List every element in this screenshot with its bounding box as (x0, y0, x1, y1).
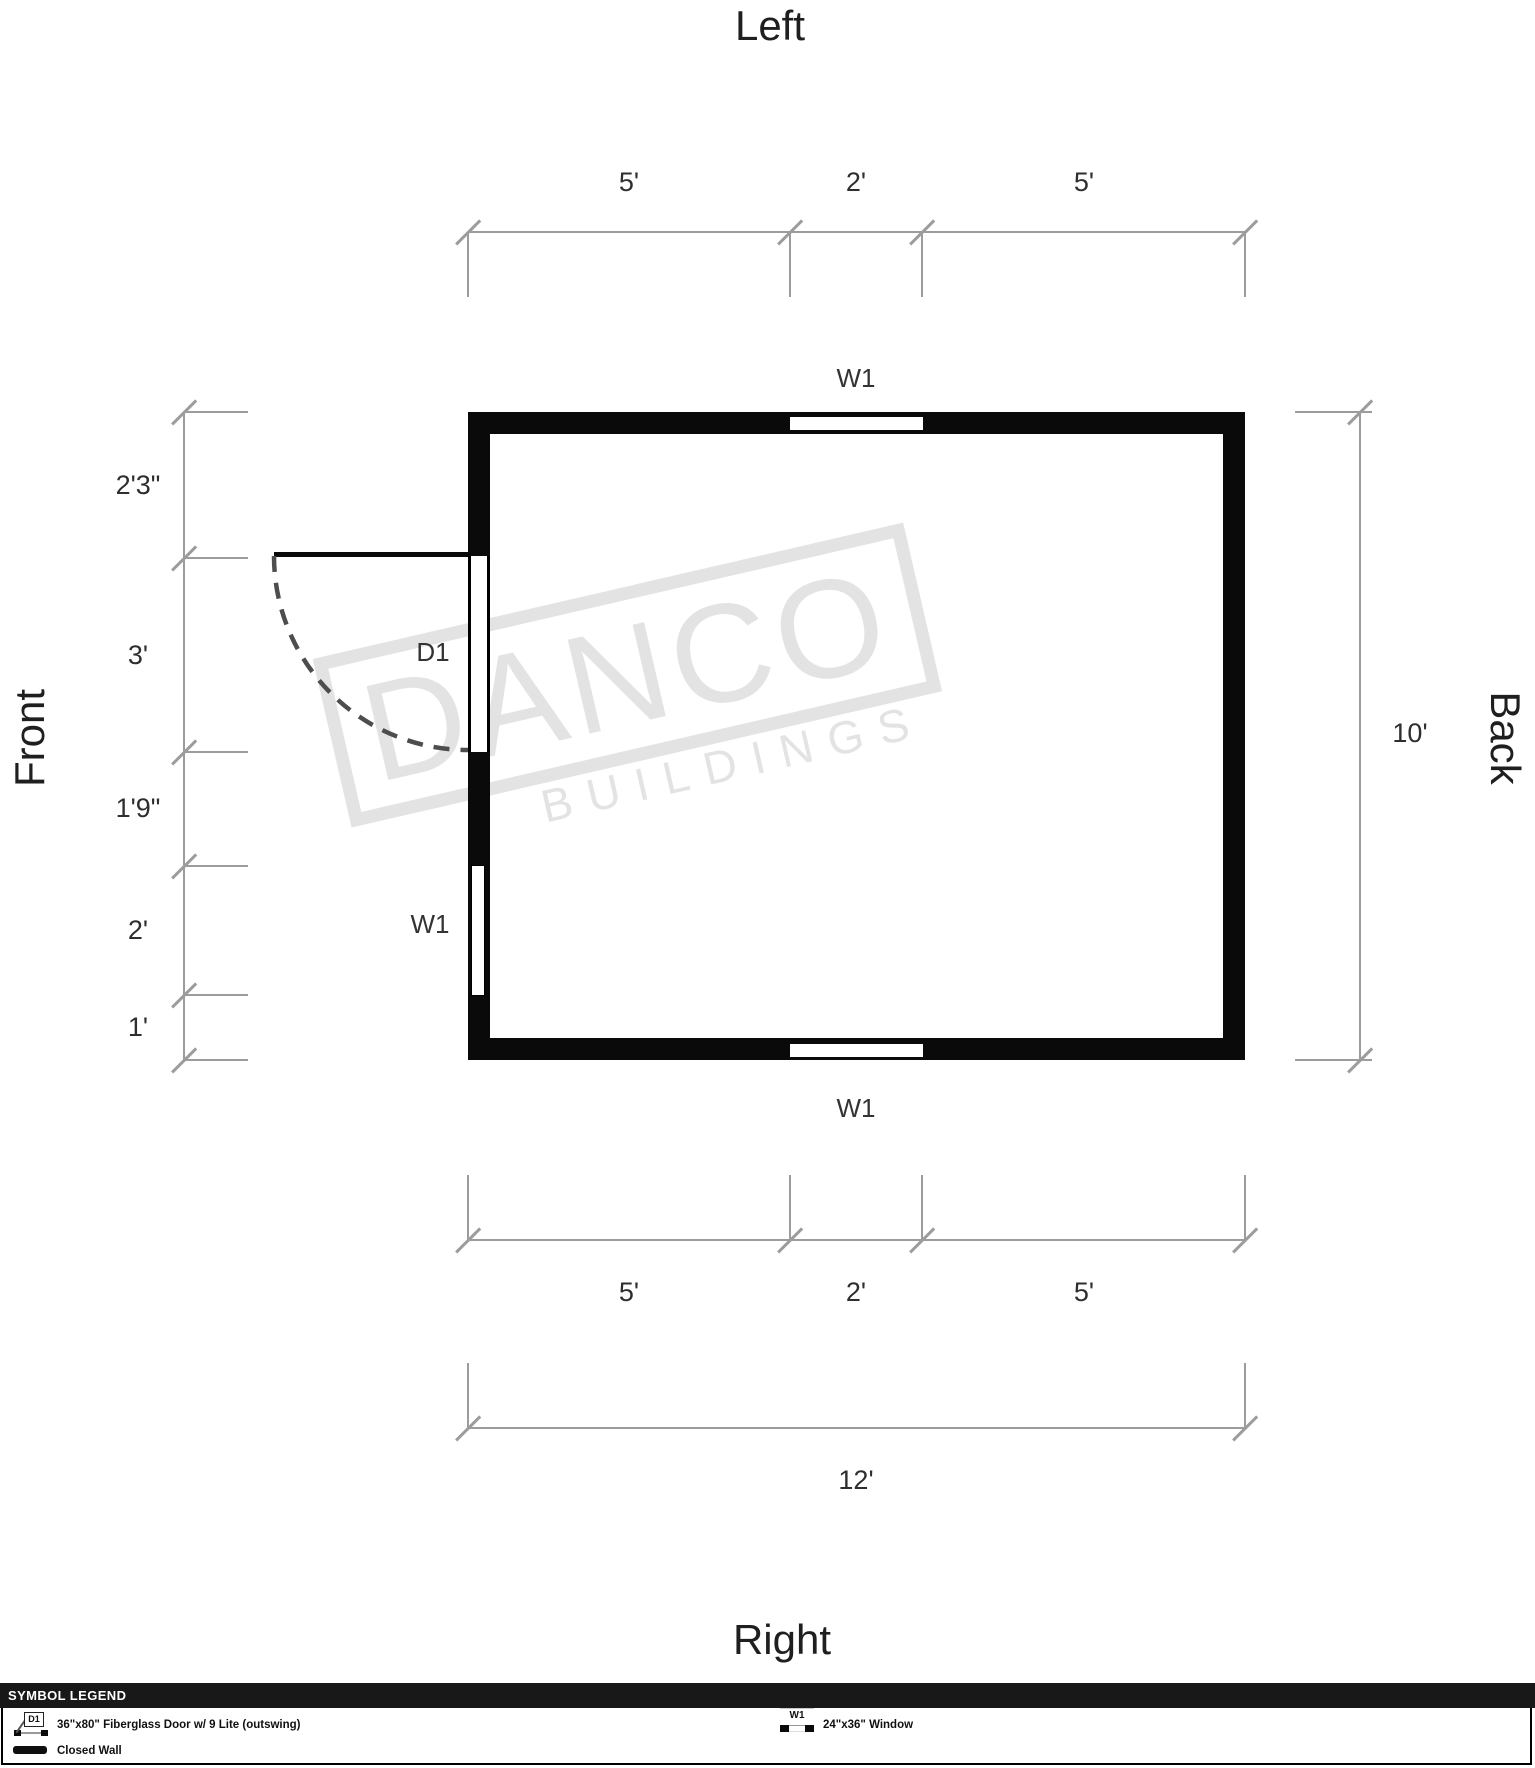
window-icon-cap (805, 1725, 814, 1732)
window-icon-label: W1 (780, 1710, 814, 1721)
dim-line-top (468, 231, 1245, 233)
dim-label-bottom-2: 2' (816, 1276, 896, 1308)
extension-line (1244, 1175, 1246, 1240)
extension-line (467, 1363, 469, 1428)
dim-label-top-3: 5' (1044, 166, 1124, 198)
window-icon-topline (780, 1708, 814, 1709)
label-window-top: W1 (816, 362, 896, 394)
dim-label-bottom-3: 5' (1044, 1276, 1124, 1308)
dim-label-left-3: 1'9" (78, 792, 198, 824)
label-window-left: W1 (390, 908, 470, 940)
door-icon-cap (41, 1730, 48, 1736)
legend-window-desc: 24"x36" Window (823, 1719, 913, 1731)
extension-line (184, 411, 248, 413)
dim-label-left-1: 2'3" (78, 469, 198, 501)
extension-line (467, 1175, 469, 1240)
dim-label-top-1: 5' (589, 166, 669, 198)
legend-wall-desc: Closed Wall (57, 1745, 122, 1757)
dim-label-top-2: 2' (816, 166, 896, 198)
extension-line (1244, 232, 1246, 297)
dim-label-left-4: 2' (78, 914, 198, 946)
label-window-bottom: W1 (816, 1092, 896, 1124)
dim-label-right-total: 10' (1370, 717, 1450, 749)
dim-label-bottom-1: 5' (589, 1276, 669, 1308)
legend-box (1, 1708, 1532, 1765)
legend-header-text: SYMBOL LEGEND (0, 1683, 1535, 1703)
dim-label-bottom-total: 12' (816, 1464, 896, 1496)
closed-wall-icon (13, 1746, 47, 1754)
extension-line (184, 994, 248, 996)
side-title-front: Front (7, 688, 53, 788)
extension-line (921, 1175, 923, 1240)
door-symbol-icon: D1 (14, 1711, 48, 1737)
extension-line (789, 1175, 791, 1240)
wall-right (1223, 412, 1245, 1060)
dim-label-left-2: 3' (78, 639, 198, 671)
window-left-w1 (471, 865, 485, 996)
extension-line (1244, 1363, 1246, 1428)
window-icon-cap (780, 1725, 789, 1732)
side-title-right: Right (702, 1616, 862, 1664)
window-bottom-w1 (790, 1044, 923, 1057)
extension-line (789, 232, 791, 297)
extension-line (184, 865, 248, 867)
dim-line-bottom (468, 1239, 1245, 1241)
side-title-left: Left (690, 2, 850, 50)
legend-header-bar: SYMBOL LEGEND (0, 1683, 1535, 1708)
extension-line (467, 232, 469, 297)
dim-line-left (183, 412, 185, 1060)
label-door: D1 (393, 636, 473, 668)
extension-line (184, 1059, 248, 1061)
door-icon-panel: D1 (24, 1712, 44, 1727)
dim-line-right (1359, 412, 1361, 1060)
window-symbol-icon: W1 (780, 1708, 814, 1734)
extension-line (921, 232, 923, 297)
window-top-w1 (790, 417, 923, 430)
dim-label-left-5: 1' (78, 1011, 198, 1043)
legend-door-desc: 36"x80" Fiberglass Door w/ 9 Lite (outsw… (57, 1719, 301, 1731)
window-icon-glass (789, 1725, 805, 1732)
extension-line (184, 751, 248, 753)
dim-line-bottom-total (468, 1427, 1245, 1429)
floorplan-page: DANCO BUILDINGS Left Right Front Back 5'… (0, 0, 1535, 1768)
side-title-back: Back (1482, 688, 1528, 788)
extension-line (184, 557, 248, 559)
